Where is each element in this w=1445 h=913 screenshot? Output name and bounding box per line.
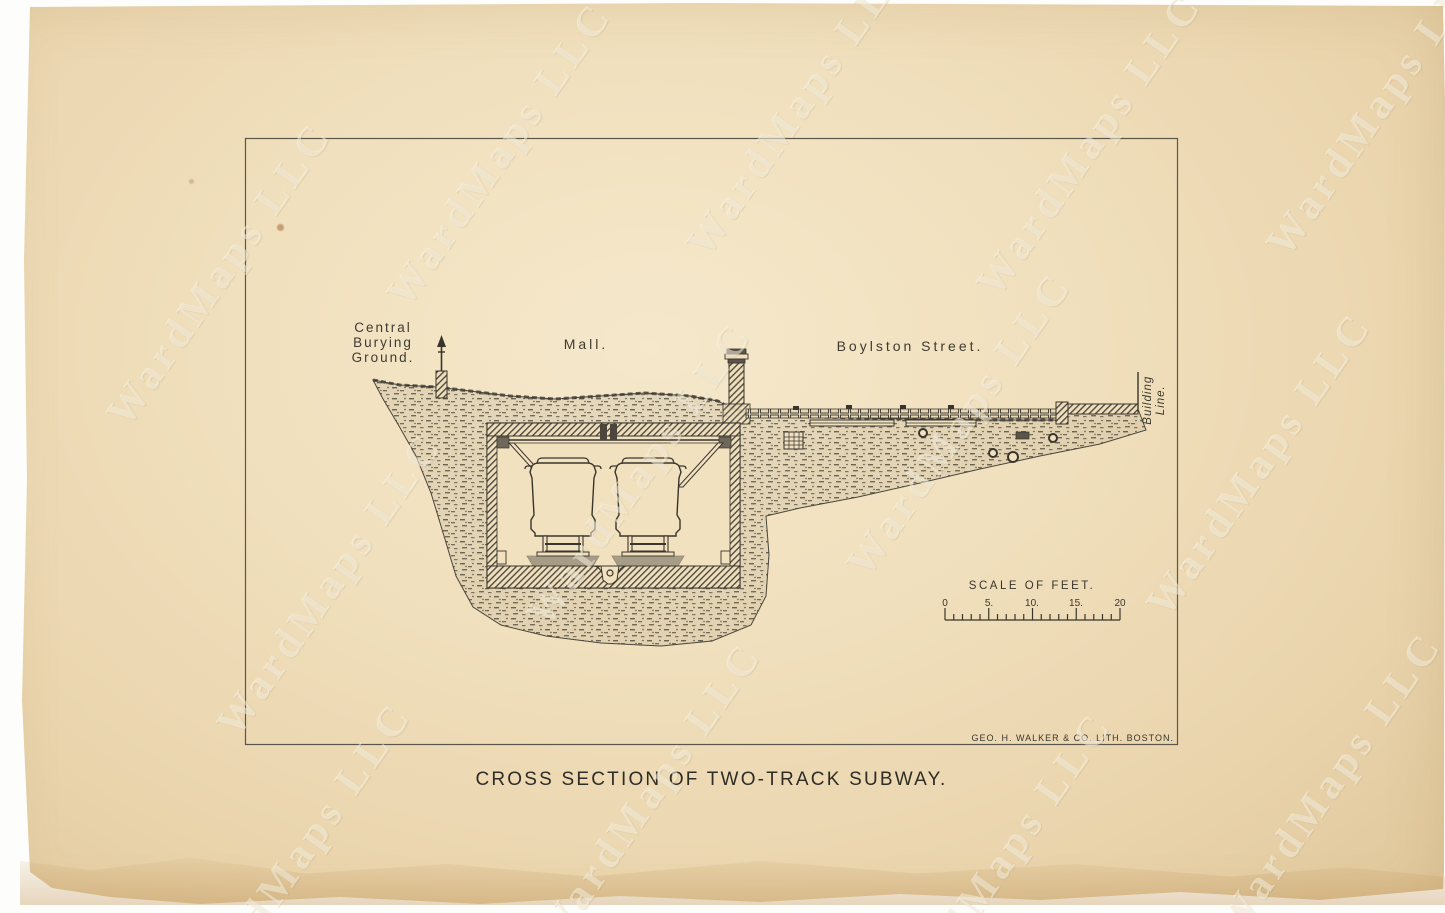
scale-tick-label: 0 — [942, 598, 948, 609]
label-building-line: Building Line. — [1142, 350, 1168, 450]
label-boylston-street: Boylston Street. — [810, 339, 1010, 355]
scale-ruler — [945, 608, 1120, 620]
scale-tick-label: 5. — [985, 598, 993, 609]
scale-bar: SCALE OF FEET. 0 5. 10. 15. 20 — [942, 580, 1126, 620]
subway-box — [487, 423, 740, 588]
lithographer-credit: GEO. H. WALKER & CO. LITH. BOSTON. — [971, 733, 1174, 743]
right-wall — [730, 436, 740, 566]
scale-tick-label: 20 — [1114, 598, 1126, 609]
scale-tick-label: 10. — [1025, 598, 1039, 609]
label-mall: Mall. — [546, 337, 626, 353]
label-central-burying-ground: Central Burying Ground. — [338, 320, 428, 365]
scale-tick-label: 15. — [1069, 598, 1083, 609]
scale-heading: SCALE OF FEET. — [969, 580, 1095, 592]
boundary-post — [436, 335, 447, 398]
left-wall — [487, 436, 497, 566]
drawing-title: CROSS SECTION OF TWO-TRACK SUBWAY. — [245, 769, 1178, 791]
catch-basin-grate — [784, 432, 803, 449]
scanned-plate: SCALE OF FEET. 0 5. 10. 15. 20 GEO. H. W… — [0, 0, 1445, 913]
